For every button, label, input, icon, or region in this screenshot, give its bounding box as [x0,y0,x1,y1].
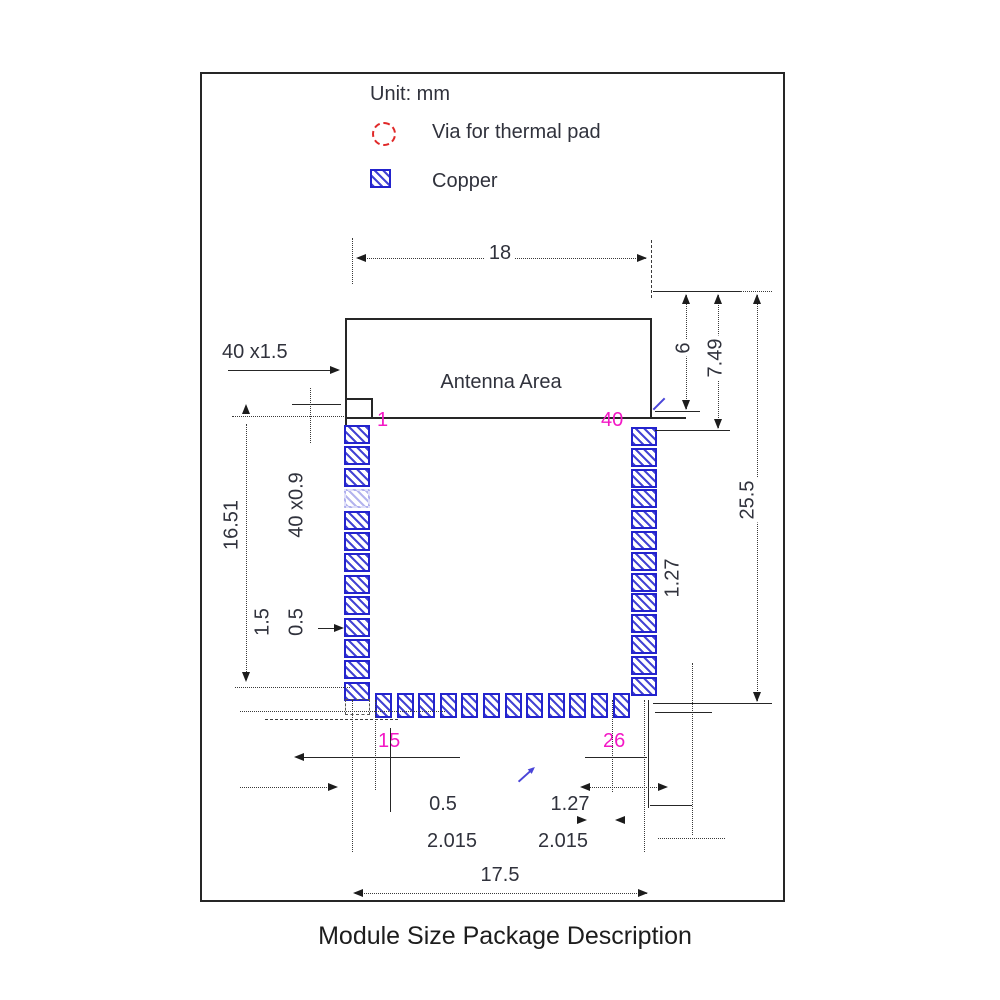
bottom-pad-9 [548,693,565,718]
extension-line [653,703,772,704]
left-pad-2 [344,446,370,465]
dim-1-27-right: 1.27 [662,559,685,598]
extension-line [390,728,391,812]
dim-arrow [753,294,761,304]
extension-line [375,700,376,790]
left-pad-1 [344,425,370,444]
dim-2-015-left: 2.015 [427,830,477,853]
bottom-pad-10 [569,693,586,718]
dim-40x1-5: 40 x1.5 [222,341,288,364]
left-pad-6 [344,532,370,551]
extension-line [235,687,350,688]
extension-line [310,388,311,443]
copper-icon [370,169,391,188]
extension-line [644,700,645,852]
left-pad-9 [344,596,370,615]
dimension-line [246,424,247,680]
left-pad-5 [344,511,370,530]
module-right-edge [650,318,652,418]
left-pad-4 [344,489,370,508]
left-pad-3 [344,468,370,487]
dim-arrow [637,254,647,262]
left-pad-11 [344,639,370,658]
extension-line [692,663,693,835]
extension-line [658,838,725,839]
bottom-pad-2 [397,693,414,718]
extension-line [352,238,353,284]
via-legend-label: Via for thermal pad [432,121,601,144]
bottom-pad-5 [461,693,478,718]
bottom-pad-1 [375,693,392,718]
dimension-line [355,893,647,894]
dim-2-015-right: 2.015 [538,830,588,853]
extension-line [655,712,712,713]
via-thermal-pad-icon [372,122,396,146]
dim-arrow [753,692,761,702]
bottom-pad-6 [483,693,500,718]
antenna-area-label: Antenna Area [440,371,561,394]
extension-line [648,700,649,808]
dim-25-5: 25.5 [737,478,760,523]
right-pad-2 [631,448,657,467]
left-pad-12 [344,660,370,679]
antenna-separator-line [345,417,686,419]
dim-arrow [714,294,722,304]
pin-40-label: 40 [601,409,623,432]
bottom-pad-11 [591,693,608,718]
right-pad-9 [631,593,657,612]
dim-arrow [714,419,722,429]
diagram-caption: Module Size Package Description [318,922,692,951]
dim-arrow [577,816,587,824]
pin-1-label: 1 [377,409,388,432]
extension-line [612,700,613,792]
dim-7-49: 7.49 [705,336,728,381]
extension-line [585,757,647,758]
right-pad-3 [631,469,657,488]
left-pad-7 [344,553,370,572]
dim-1-5: 1.5 [252,608,275,636]
extension-line [240,711,445,712]
copper-legend-label: Copper [432,170,498,193]
module-top-edge [345,318,651,320]
dim-arrow [242,672,250,682]
extension-line [352,700,353,852]
unit-label: Unit: mm [370,83,450,106]
dim-arrow [658,783,668,791]
dimension-line [240,787,335,788]
dim-arrow [328,783,338,791]
dim-arrow [334,624,344,632]
right-pad-1 [631,427,657,446]
extension-line [265,719,398,720]
dim-arrow [294,753,304,761]
extension-line [653,291,740,292]
dim-arrow [353,889,363,897]
dim-arrow [682,294,690,304]
dim-arrow [330,366,340,374]
dim-arrow [242,404,250,414]
dimension-line [585,787,665,788]
bottom-pad-12 [613,693,630,718]
dim-17-5: 17.5 [481,864,520,887]
left-pad-8 [344,575,370,594]
dim-0-5-bottom: 0.5 [429,793,457,816]
dim-arrow [580,783,590,791]
right-pad-11 [631,635,657,654]
dim-0-5-left: 0.5 [286,608,309,636]
extension-line [651,240,652,298]
dim-16-51: 16.51 [221,497,244,553]
dim-6: 6 [673,339,696,356]
pin1-notch [345,398,373,417]
pin-26-label: 26 [603,730,625,753]
right-pad-6 [631,531,657,550]
right-pad-12 [631,656,657,675]
bottom-pad-7 [505,693,522,718]
bottom-pad-8 [526,693,543,718]
extension-line [655,430,730,431]
bottom-pad-4 [440,693,457,718]
left-pad-13 [344,682,370,701]
right-pad-7 [631,552,657,571]
extension-line [740,291,772,292]
extension-line [232,416,344,417]
dimension-line [300,757,460,758]
right-pad-8 [631,573,657,592]
extension-line [292,404,341,405]
dim-arrow [615,816,625,824]
extension-line [655,411,700,412]
right-pad-10 [631,614,657,633]
module-package-diagram: Unit: mm Via for thermal pad Copper Ante… [0,0,1000,1000]
right-pad-5 [631,510,657,529]
dim-40x0-9: 40 x0.9 [286,472,309,538]
dim-arrow [682,400,690,410]
left-pad-10 [344,618,370,637]
dim-arrow [638,889,648,897]
right-pad-4 [631,489,657,508]
dim-18: 18 [485,242,515,265]
ghost-pad-outline [345,699,370,715]
extension-line [650,805,692,806]
dim-arrow [356,254,366,262]
bottom-pad-3 [418,693,435,718]
dim-1-27-bottom: 1.27 [551,793,590,816]
leader-line [228,370,338,371]
right-pad-13 [631,677,657,696]
